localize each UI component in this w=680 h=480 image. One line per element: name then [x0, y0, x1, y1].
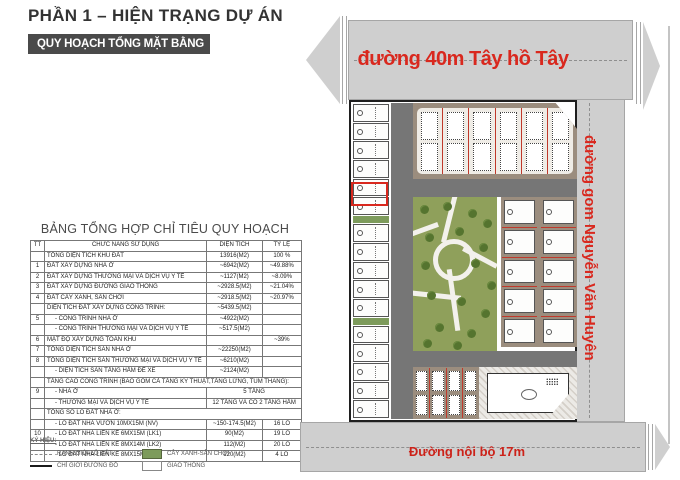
- tree-icon: [420, 205, 429, 214]
- lot: [416, 371, 427, 391]
- road-label-right: đường gom Nguyễn Văn Huyên: [581, 118, 598, 378]
- legend-label: CHỈ GIỚI ĐƯỜNG ĐỎ: [57, 463, 118, 469]
- cell-label: - NHÀ Ở: [45, 388, 207, 399]
- lot: [473, 112, 490, 140]
- table-row: - CÔNG TRÌNH THƯƠNG MẠI VÀ DỊCH VỤ Y TẾ~…: [31, 325, 302, 336]
- lot: [543, 230, 574, 254]
- lot: [449, 371, 460, 391]
- cell-tt: [31, 304, 45, 315]
- cell-ratio: [262, 367, 301, 378]
- table-row: - LÔ ĐẤT NHÀ VƯỜN 10MX15M (NV)~150-174.5…: [31, 419, 302, 430]
- legend-item-green: CÂY XANH-SÂN CHƠI: [142, 449, 280, 459]
- lot-column: [522, 108, 548, 174]
- tree-icon: [481, 309, 490, 318]
- cell-label: ĐẤT XÂY DỰNG NHÀ Ở: [45, 262, 207, 273]
- cell-ratio: [262, 325, 301, 336]
- lot: [504, 260, 535, 284]
- internal-road-horizontal: [413, 351, 577, 367]
- tree-icon: [453, 341, 462, 350]
- lot: [552, 143, 569, 171]
- cell-ratio: [262, 314, 301, 325]
- cell-ratio: ~39%: [262, 335, 301, 346]
- section-banner: QUY HOẠCH TỔNG MẶT BẰNG: [28, 34, 210, 54]
- tree-icon: [479, 243, 488, 252]
- cell-tt: 4: [31, 293, 45, 304]
- lot: [543, 319, 574, 343]
- table-row: - DIỆN TÍCH SÀN TẦNG HẦM ĐỂ XE~2124(M2): [31, 367, 302, 378]
- lot-cell: [502, 228, 537, 258]
- cell-value: 5 TẦNG: [207, 388, 302, 399]
- lot-column: [443, 108, 469, 174]
- lot-column: [496, 108, 522, 174]
- table-title: BẢNG TỔNG HỢP CHỈ TIÊU QUY HOẠCH: [24, 222, 306, 236]
- cell-ratio: ~8.09%: [262, 272, 301, 283]
- cell-tt: [31, 367, 45, 378]
- cell-label: TỔNG DIỆN TÍCH SÀN THƯƠNG MẠI VÀ DỊCH VỤ…: [45, 356, 207, 367]
- road-label-bottom: Đường nội bộ 17m: [396, 444, 538, 459]
- lot: [353, 344, 389, 362]
- cell-label: - DIỆN TÍCH SÀN TẦNG HẦM ĐỂ XE: [45, 367, 207, 378]
- lot-column: [417, 108, 443, 174]
- planning-indicator-table: TT CHỨC NĂNG SỬ DỤNG DIỆN TÍCH TỶ LỆ TỔN…: [30, 240, 302, 462]
- cell-tt: 1: [31, 262, 45, 273]
- cell-label: TỔNG SỐ LÔ ĐẤT NHÀ Ở:: [45, 409, 302, 420]
- lot: [473, 143, 490, 171]
- lot: [353, 141, 389, 159]
- cell-label: - THƯƠNG MẠI VÀ DỊCH VỤ Y TẾ: [45, 398, 207, 409]
- internal-road-horizontal: [413, 179, 577, 197]
- lot: [465, 395, 476, 415]
- green-box-icon: [142, 449, 162, 459]
- lot: [504, 200, 535, 224]
- road-edge-line: [668, 26, 670, 444]
- tree-icon: [443, 202, 452, 211]
- cell-tt: 9: [31, 388, 45, 399]
- tree-icon: [471, 259, 480, 268]
- lot-column: [430, 368, 446, 418]
- lot: [504, 319, 535, 343]
- cell-tt: [31, 409, 45, 420]
- cell-tt: [31, 251, 45, 262]
- legend-label: GIAO THÔNG: [167, 463, 205, 469]
- lot-cell: [541, 198, 576, 228]
- table-row: 9- NHÀ Ở5 TẦNG: [31, 388, 302, 399]
- lot: [447, 143, 464, 171]
- lot: [353, 382, 389, 400]
- arrow-left-icon: [306, 16, 340, 104]
- planning-table-body: TỔNG DIỆN TÍCH KHU ĐẤT13916(M2)100 %1ĐẤT…: [31, 251, 302, 461]
- lot: [526, 112, 543, 140]
- lot-block-top-inner: [417, 108, 573, 174]
- lot: [353, 262, 389, 280]
- cell-ratio: ~21.04%: [262, 283, 301, 294]
- cell-tt: [31, 419, 45, 430]
- page-title: PHẦN 1 – HIỆN TRẠNG DỰ ÁN: [28, 6, 283, 26]
- lot-block-right: [501, 197, 577, 347]
- lot-column: [541, 198, 576, 346]
- cell-area: ~1127(M2): [207, 272, 263, 283]
- lot: [465, 371, 476, 391]
- tree-icon: [483, 219, 492, 228]
- road-edge-line: [640, 22, 641, 104]
- lot-cell: [502, 287, 537, 317]
- cell-label: TỔNG DIỆN TÍCH SÀN NHÀ Ở: [45, 346, 207, 357]
- table-row: 7TỔNG DIỆN TÍCH SÀN NHÀ Ở~22250(M2): [31, 346, 302, 357]
- lot-cell: [541, 228, 576, 258]
- lot: [432, 395, 443, 415]
- table-row: 6MẬT ĐỘ XÂY DỰNG TOÀN KHU~39%: [31, 335, 302, 346]
- internal-road-vertical: [391, 103, 413, 419]
- cell-tt: 6: [31, 335, 45, 346]
- lot-column: [548, 108, 573, 174]
- cell-area: ~150-174.5(M2): [207, 419, 263, 430]
- cell-ratio: 100 %: [262, 251, 301, 262]
- road-edge-line: [652, 424, 653, 470]
- lot: [504, 230, 535, 254]
- cell-area: ~5439.5(M2): [207, 304, 263, 315]
- cell-label: TẦNG CAO CÔNG TRÌNH (BAO GỒM CẢ TẦNG KỸ …: [45, 377, 302, 388]
- lot-cell: [541, 317, 576, 346]
- tree-icon: [487, 281, 496, 290]
- cell-label: ĐẤT XÂY DỰNG ĐƯỜNG GIAO THÔNG: [45, 283, 207, 294]
- col-header-tt: TT: [31, 241, 45, 252]
- table-row: 5- CÔNG TRÌNH NHÀ Ở~4922(M2): [31, 314, 302, 325]
- lot: [526, 143, 543, 171]
- lot-block-top: [413, 103, 577, 179]
- lot-column: [414, 368, 430, 418]
- lot: [353, 160, 389, 178]
- lot-cell: [541, 287, 576, 317]
- lot-strip-left: [352, 103, 390, 419]
- cell-ratio: [262, 304, 301, 315]
- table-row: DIỆN TÍCH ĐẤT XÂY DỰNG CÔNG TRÌNH:~5439.…: [31, 304, 302, 315]
- lot-cell: [502, 258, 537, 288]
- cell-tt: 8: [31, 356, 45, 367]
- table-row: 1ĐẤT XÂY DỰNG NHÀ Ở~6942(M2)~49.88%: [31, 262, 302, 273]
- lot: [543, 200, 574, 224]
- col-header-area: DIỆN TÍCH: [207, 241, 263, 252]
- cell-area: 13916(M2): [207, 251, 263, 262]
- cell-tt: 5: [31, 314, 45, 325]
- legend-label: CÂY XANH-SÂN CHƠI: [167, 451, 229, 457]
- tree-icon: [427, 291, 436, 300]
- table-row: 4ĐẤT CÂY XANH, SÂN CHƠI~2918.5(M2)~20.97…: [31, 293, 302, 304]
- cell-label: ĐẤT XÂY DỰNG THƯƠNG MẠI VÀ DỊCH VỤ Y TẾ: [45, 272, 207, 283]
- tree-icon: [468, 209, 477, 218]
- lot: [353, 123, 389, 141]
- lot: [421, 112, 438, 140]
- cell-label: - CÔNG TRÌNH THƯƠNG MẠI VÀ DỊCH VỤ Y TẾ: [45, 325, 207, 336]
- park-path: [433, 239, 475, 281]
- green-strip: [353, 318, 389, 325]
- building-grid-detail: [546, 378, 558, 386]
- lot: [504, 289, 535, 313]
- lot: [432, 371, 443, 391]
- planning-page: PHẦN 1 – HIỆN TRẠNG DỰ ÁN QUY HOẠCH TỔNG…: [0, 0, 680, 480]
- arrow-right-icon: [643, 22, 660, 110]
- green-strip: [353, 216, 389, 223]
- table-row: - THƯƠNG MẠI VÀ DỊCH VỤ Y TẾ12 TẦNG VÀ C…: [31, 398, 302, 409]
- legend-item-red-line: CHỈ GIỚI ĐƯỜNG ĐỎ: [30, 463, 142, 469]
- cell-ratio: ~49.88%: [262, 262, 301, 273]
- cell-area: ~6942(M2): [207, 262, 263, 273]
- lot-cell: [502, 317, 537, 346]
- lot-column: [502, 198, 537, 346]
- cell-tt: 2: [31, 272, 45, 283]
- road-edge-line: [636, 22, 637, 104]
- lot-column: [469, 108, 495, 174]
- cell-area: ~517.5(M2): [207, 325, 263, 336]
- cell-ratio: [262, 346, 301, 357]
- table-header-row: TT CHỨC NĂNG SỬ DỤNG DIỆN TÍCH TỶ LỆ: [31, 241, 302, 252]
- col-header-function: CHỨC NĂNG SỬ DỤNG: [45, 241, 207, 252]
- tree-icon: [455, 227, 464, 236]
- cell-ratio: ~20.97%: [262, 293, 301, 304]
- cell-area: [207, 335, 263, 346]
- legend-title: KÝ HIỆU:: [30, 438, 280, 444]
- table-row: 8TỔNG DIỆN TÍCH SÀN THƯƠNG MẠI VÀ DỊCH V…: [31, 356, 302, 367]
- cell-tt: [31, 325, 45, 336]
- commercial-building: [487, 373, 569, 413]
- cell-tt: [31, 398, 45, 409]
- cell-ratio: [262, 356, 301, 367]
- road-label-top: đường 40m Tây hồ Tây: [340, 48, 586, 71]
- cell-label: - LÔ ĐẤT NHÀ VƯỜN 10MX15M (NV): [45, 419, 207, 430]
- solid-line-icon: [30, 465, 52, 467]
- lot: [353, 104, 389, 122]
- white-box-icon: [142, 461, 162, 471]
- tree-icon: [421, 261, 430, 270]
- commercial-plaza: [479, 367, 577, 419]
- lot-column: [463, 368, 478, 418]
- lot: [353, 299, 389, 317]
- lot: [353, 400, 389, 418]
- table-row: 3ĐẤT XÂY DỰNG ĐƯỜNG GIAO THÔNG~2928.5(M2…: [31, 283, 302, 294]
- lot-column: [447, 368, 463, 418]
- legend-item-lot-boundary: RANH GIỚI LÔ ĐẤT: [30, 451, 142, 457]
- cell-label: DIỆN TÍCH ĐẤT XÂY DỰNG CÔNG TRÌNH:: [45, 304, 207, 315]
- road-edge-line: [648, 424, 649, 470]
- lot: [353, 326, 389, 344]
- cell-tt: 3: [31, 283, 45, 294]
- cell-value: 12 TẦNG VÀ CÓ 2 TẦNG HẦM: [207, 398, 302, 409]
- lot: [353, 280, 389, 298]
- lot: [353, 363, 389, 381]
- lot: [353, 243, 389, 261]
- table-row: TẦNG CAO CÔNG TRÌNH (BAO GỒM CẢ TẦNG KỸ …: [31, 377, 302, 388]
- lot: [447, 112, 464, 140]
- cell-area: ~2928.5(M2): [207, 283, 263, 294]
- tree-icon: [423, 339, 432, 348]
- legend: KÝ HIỆU: RANH GIỚI LÔ ĐẤT CÂY XANH-SÂN C…: [30, 438, 280, 472]
- cell-tt: 7: [31, 346, 45, 357]
- tree-icon: [457, 297, 466, 306]
- cell-label: - CÔNG TRÌNH NHÀ Ở: [45, 314, 207, 325]
- lot: [500, 143, 517, 171]
- legend-label: RANH GIỚI LÔ ĐẤT: [57, 451, 112, 457]
- cell-label: TỔNG DIỆN TÍCH KHU ĐẤT: [45, 251, 207, 262]
- lot: [500, 112, 517, 140]
- lot: [552, 112, 569, 140]
- cell-tt: [31, 377, 45, 388]
- highlighted-lot-marker: [351, 182, 388, 206]
- cell-area: ~22250(M2): [207, 346, 263, 357]
- tree-icon: [435, 323, 444, 332]
- cell-area: ~4922(M2): [207, 314, 263, 325]
- legend-item-traffic: GIAO THÔNG: [142, 461, 280, 471]
- lot-cell: [502, 198, 537, 228]
- lot: [543, 289, 574, 313]
- lot: [543, 260, 574, 284]
- cell-label: MẬT ĐỘ XÂY DỰNG TOÀN KHU: [45, 335, 207, 346]
- site-plan: [349, 100, 577, 422]
- building-stamp: [521, 389, 537, 400]
- lot: [353, 224, 389, 242]
- park-green-area: [413, 197, 497, 351]
- cell-ratio: 16 LÔ: [262, 419, 301, 430]
- table-row: 2ĐẤT XÂY DỰNG THƯƠNG MẠI VÀ DỊCH VỤ Y TẾ…: [31, 272, 302, 283]
- tree-icon: [425, 233, 434, 242]
- table-row: TỔNG SỐ LÔ ĐẤT NHÀ Ở:: [31, 409, 302, 420]
- lot: [421, 143, 438, 171]
- table-row: TỔNG DIỆN TÍCH KHU ĐẤT13916(M2)100 %: [31, 251, 302, 262]
- lot: [416, 395, 427, 415]
- cell-area: ~2918.5(M2): [207, 293, 263, 304]
- bottom-lots: [413, 367, 479, 419]
- lot: [449, 395, 460, 415]
- tree-icon: [467, 329, 476, 338]
- lot-cell: [541, 258, 576, 288]
- cell-area: ~2124(M2): [207, 367, 263, 378]
- dashed-line-icon: [30, 454, 52, 455]
- cell-label: ĐẤT CÂY XANH, SÂN CHƠI: [45, 293, 207, 304]
- lot-block-bottom: [413, 367, 577, 419]
- cell-area: ~6210(M2): [207, 356, 263, 367]
- col-header-ratio: TỶ LỆ: [262, 241, 301, 252]
